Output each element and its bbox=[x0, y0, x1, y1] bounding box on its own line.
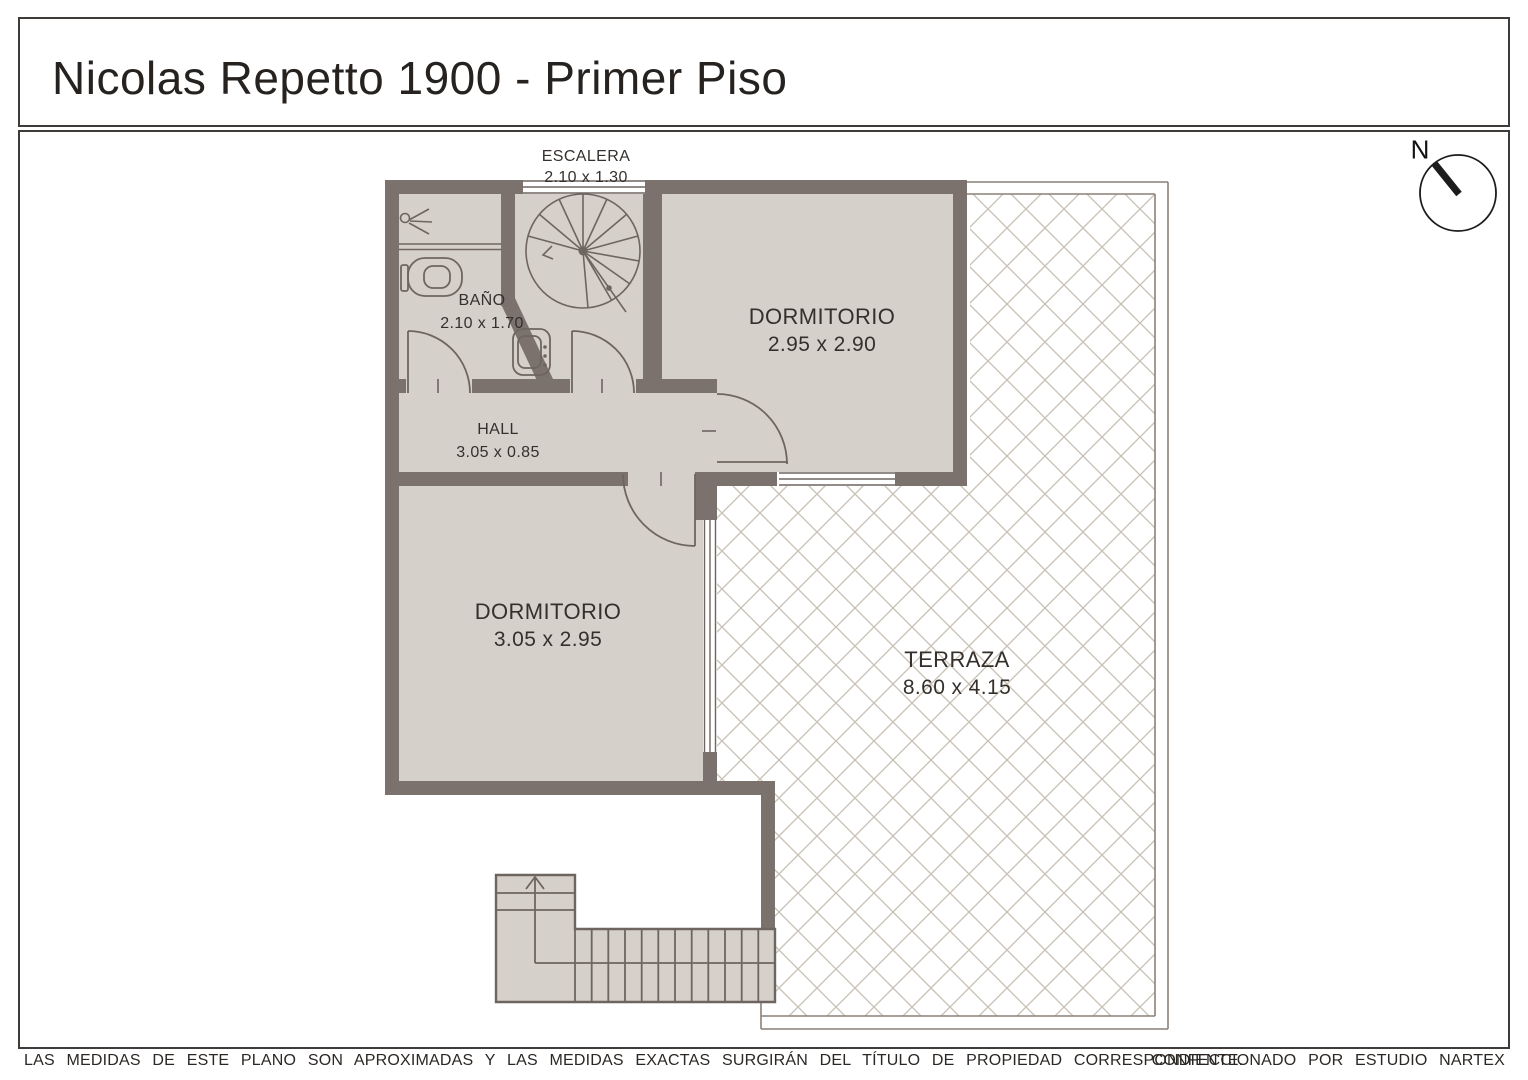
room-dims-hall: 3.05 x 0.85 bbox=[456, 444, 540, 462]
north-label: N bbox=[1411, 135, 1430, 166]
room-label-banio: BAÑO bbox=[459, 292, 506, 310]
room-label-dormitorio-1: DORMITORIO bbox=[749, 304, 896, 330]
room-label-terraza: TERRAZA bbox=[904, 647, 1009, 673]
room-label-escalera: ESCALERA bbox=[542, 148, 631, 166]
compass-needle-icon bbox=[1434, 163, 1459, 194]
room-dims-terraza: 8.60 x 4.15 bbox=[903, 676, 1011, 700]
room-dims-escalera: 2.10 x 1.30 bbox=[544, 169, 628, 187]
floor-plan-page: Nicolas Repetto 1900 - Primer Piso bbox=[0, 0, 1528, 1080]
room-label-dormitorio-2: DORMITORIO bbox=[475, 599, 622, 625]
window-dormitorio1-icon bbox=[779, 472, 895, 486]
window-dormitorio2-icon bbox=[703, 520, 717, 752]
staircase bbox=[496, 875, 775, 1002]
room-dims-dormitorio-1: 2.95 x 2.90 bbox=[768, 333, 876, 357]
room-dims-banio: 2.10 x 1.70 bbox=[440, 315, 524, 333]
room-dims-dormitorio-2: 3.05 x 2.95 bbox=[494, 628, 602, 652]
room-label-hall: HALL bbox=[477, 421, 519, 439]
north-compass bbox=[1420, 155, 1496, 231]
footer-credit: CONFECCIONADO POR ESTUDIO NARTEX bbox=[1152, 1052, 1505, 1070]
floor-plan-svg bbox=[0, 0, 1528, 1080]
footer-disclaimer: LAS MEDIDAS DE ESTE PLANO SON APROXIMADA… bbox=[24, 1052, 1243, 1070]
